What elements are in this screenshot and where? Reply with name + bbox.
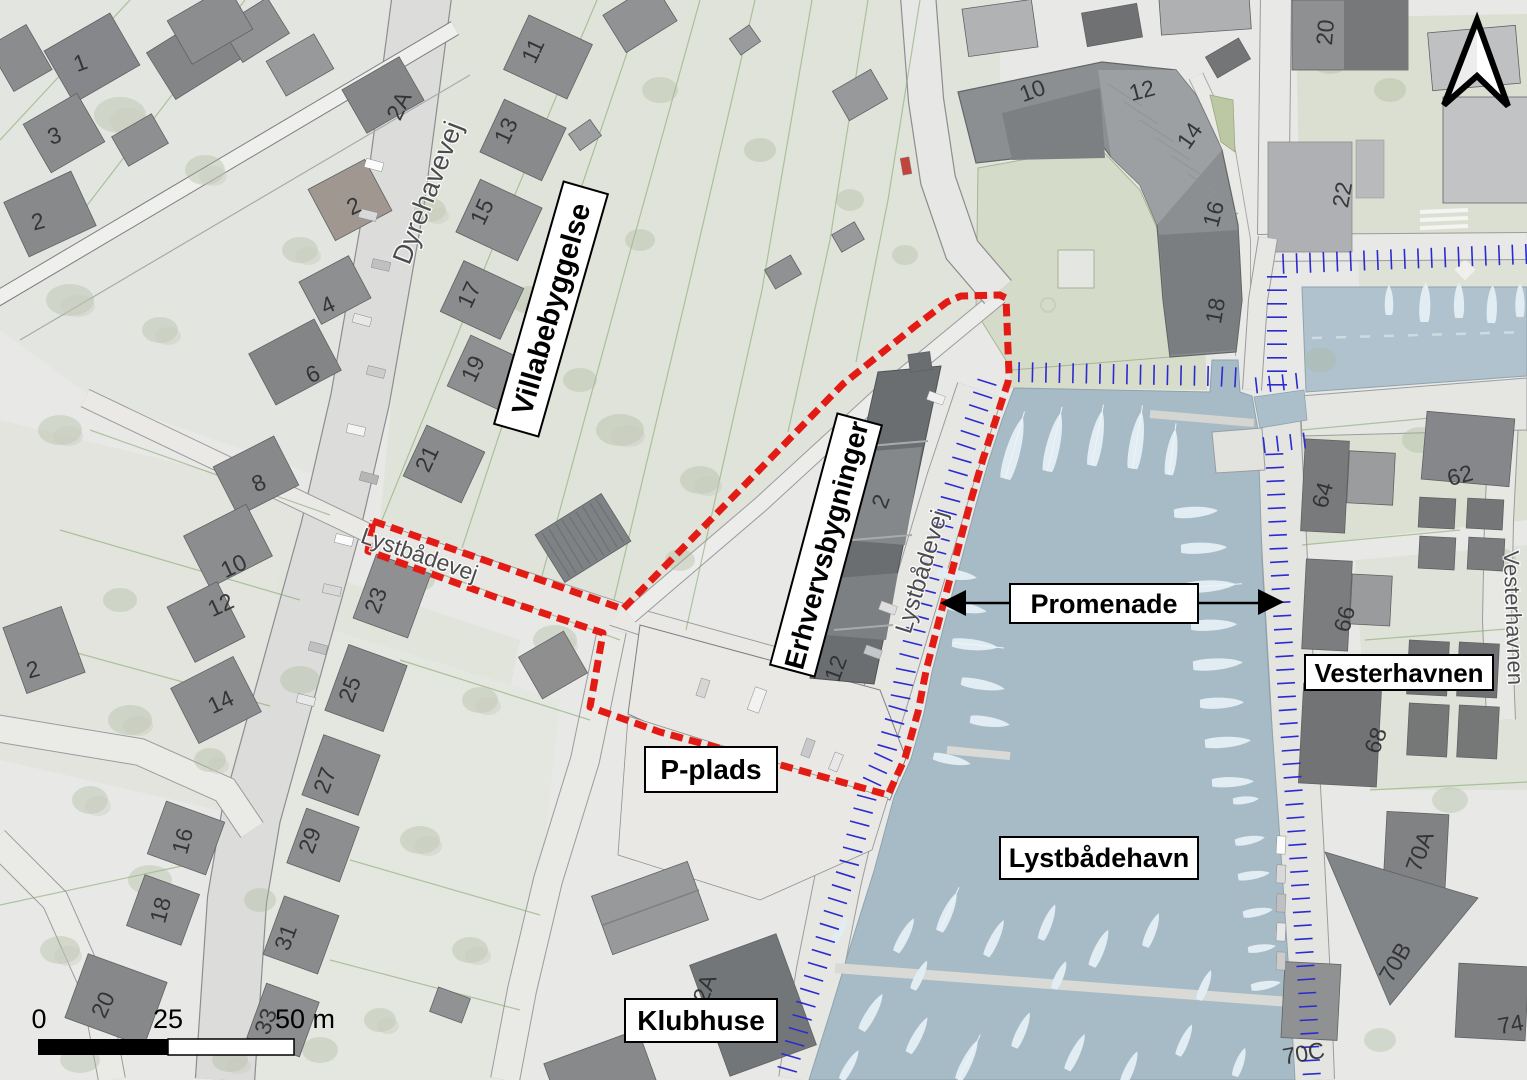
svg-text:50 m: 50 m	[275, 1004, 335, 1034]
svg-text:74: 74	[1496, 1009, 1526, 1039]
svg-text:22: 22	[1327, 180, 1357, 210]
svg-text:18: 18	[1200, 296, 1230, 326]
svg-text:25: 25	[153, 1004, 183, 1034]
svg-text:Lystbådehavn: Lystbådehavn	[1009, 843, 1190, 873]
svg-text:Vesterhavnen: Vesterhavnen	[1314, 658, 1483, 688]
svg-text:P-plads: P-plads	[660, 754, 761, 785]
svg-text:Vesterhavnen: Vesterhavnen	[1499, 550, 1527, 685]
svg-text:Promenade: Promenade	[1030, 589, 1177, 619]
svg-text:0: 0	[31, 1004, 46, 1034]
svg-text:Klubhuse: Klubhuse	[637, 1005, 765, 1036]
svg-text:20: 20	[1311, 18, 1339, 46]
